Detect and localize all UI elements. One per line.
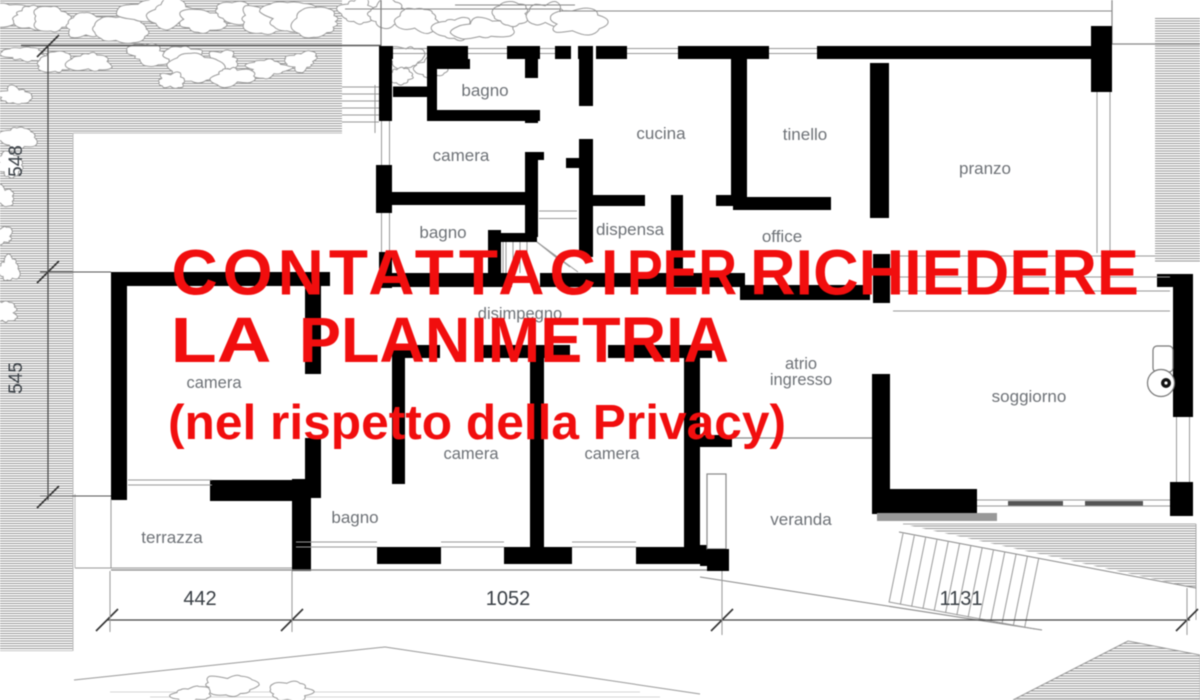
- svg-text:bagno: bagno: [331, 508, 378, 527]
- svg-text:1131: 1131: [939, 588, 982, 610]
- svg-text:cucina: cucina: [636, 124, 686, 143]
- svg-text:terrazza: terrazza: [141, 528, 203, 547]
- svg-text:LA: LA: [171, 304, 272, 376]
- svg-text:548: 548: [6, 145, 27, 177]
- svg-text:PER: PER: [627, 237, 737, 309]
- svg-text:camera: camera: [433, 146, 490, 165]
- svg-text:1052: 1052: [486, 588, 531, 610]
- svg-text:545: 545: [6, 362, 27, 394]
- svg-text:442: 442: [183, 588, 216, 610]
- svg-text:ingresso: ingresso: [770, 371, 832, 389]
- svg-text:CONTATTACI: CONTATTACI: [172, 237, 619, 309]
- svg-text:pranzo: pranzo: [959, 159, 1011, 178]
- svg-text:(nel rispetto della Privacy): (nel rispetto della Privacy): [168, 396, 786, 450]
- svg-text:tinello: tinello: [783, 125, 827, 144]
- svg-text:camera: camera: [186, 374, 242, 392]
- svg-text:soggiorno: soggiorno: [992, 387, 1067, 406]
- svg-text:veranda: veranda: [770, 510, 832, 529]
- svg-text:RICHIEDERE: RICHIEDERE: [750, 237, 1139, 309]
- svg-text:PLANIMETRIA: PLANIMETRIA: [299, 304, 729, 376]
- svg-text:bagno: bagno: [461, 81, 508, 100]
